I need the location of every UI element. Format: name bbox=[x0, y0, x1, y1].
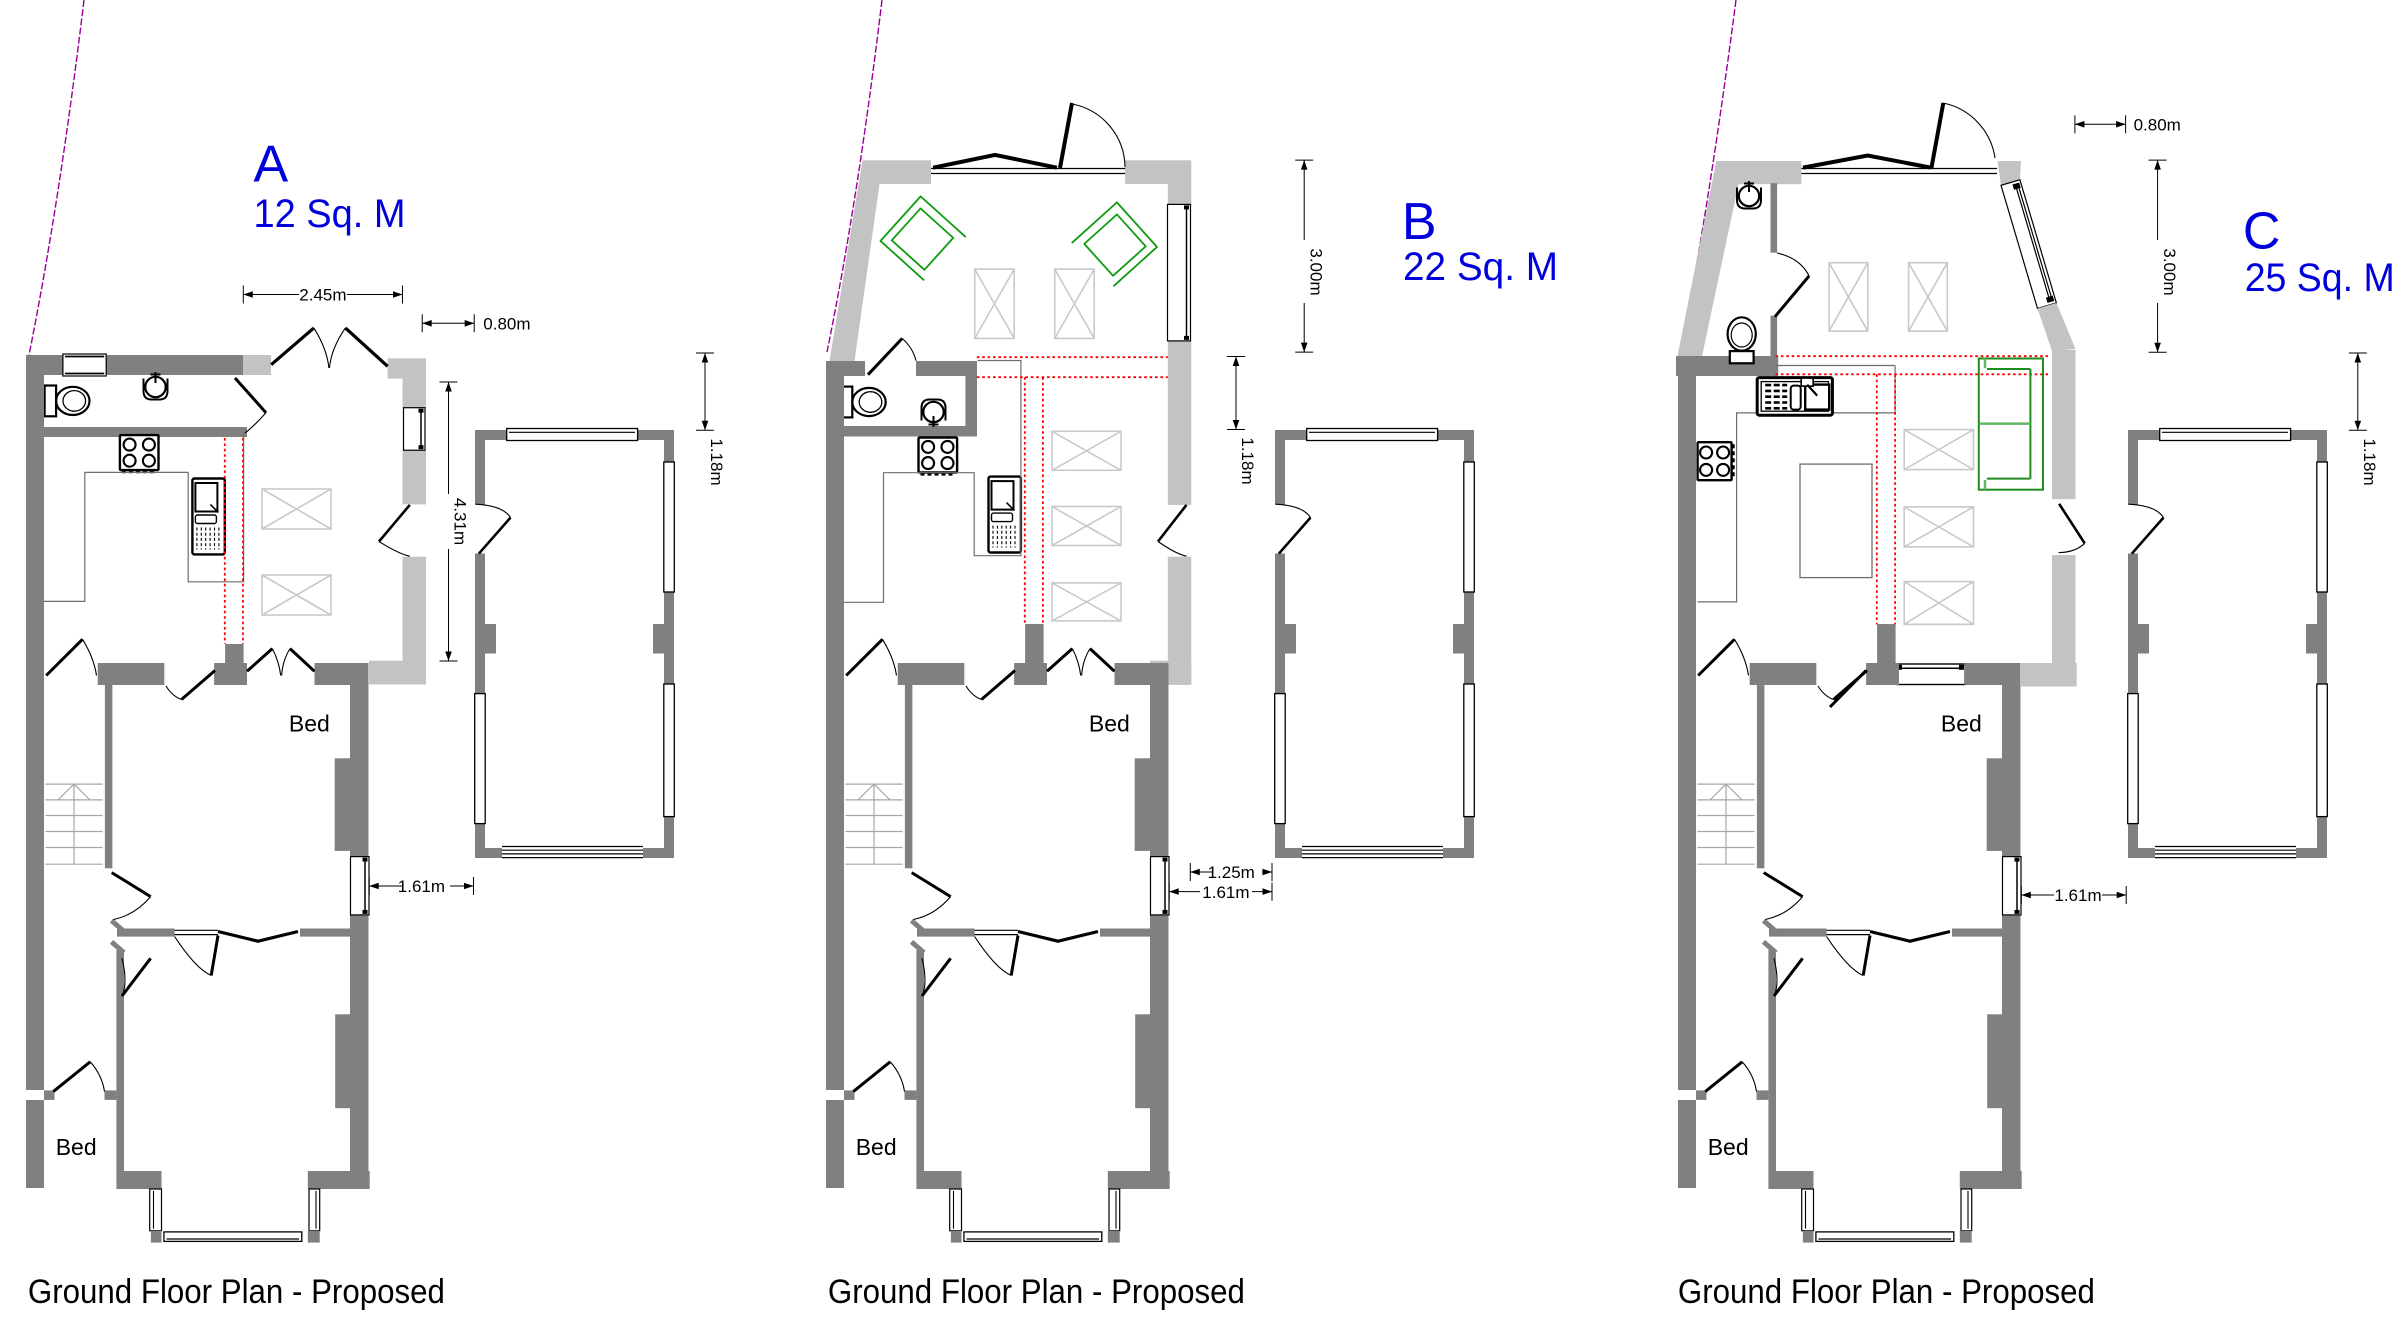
svg-text:C: C bbox=[2243, 203, 2281, 261]
svg-text:12 Sq. M: 12 Sq. M bbox=[254, 192, 406, 236]
svg-text:3.00m: 3.00m bbox=[1306, 248, 1325, 295]
svg-text:1.18m: 1.18m bbox=[1238, 437, 1257, 484]
svg-text:1.25m: 1.25m bbox=[1208, 863, 1255, 882]
svg-text:A: A bbox=[254, 135, 289, 193]
svg-text:B: B bbox=[1402, 193, 1437, 251]
svg-text:Ground Floor Plan - Proposed: Ground Floor Plan - Proposed bbox=[828, 1273, 1245, 1311]
svg-text:0.80m: 0.80m bbox=[483, 315, 530, 334]
svg-text:0.80m: 0.80m bbox=[2134, 116, 2181, 135]
svg-text:Bed: Bed bbox=[289, 711, 330, 737]
svg-text:1.61m: 1.61m bbox=[1202, 883, 1249, 902]
svg-text:Ground Floor Plan - Proposed: Ground Floor Plan - Proposed bbox=[1678, 1273, 2095, 1311]
svg-text:4.31m: 4.31m bbox=[451, 498, 470, 545]
svg-text:Bed: Bed bbox=[1941, 711, 1982, 737]
svg-text:Bed: Bed bbox=[856, 1134, 897, 1160]
svg-text:3.00m: 3.00m bbox=[2160, 248, 2179, 295]
svg-text:1.18m: 1.18m bbox=[707, 438, 726, 485]
svg-text:Bed: Bed bbox=[1089, 711, 1130, 737]
svg-text:25 Sq. M: 25 Sq. M bbox=[2245, 256, 2395, 300]
svg-text:Bed: Bed bbox=[1708, 1134, 1749, 1160]
svg-text:1.61m: 1.61m bbox=[398, 877, 445, 896]
svg-text:22 Sq. M: 22 Sq. M bbox=[1403, 245, 1558, 289]
svg-text:Bed: Bed bbox=[56, 1134, 97, 1160]
svg-text:Ground Floor Plan - Proposed: Ground Floor Plan - Proposed bbox=[28, 1273, 445, 1311]
svg-text:1.18m: 1.18m bbox=[2360, 438, 2379, 485]
svg-text:1.61m: 1.61m bbox=[2054, 886, 2101, 905]
svg-text:2.45m: 2.45m bbox=[299, 286, 346, 305]
